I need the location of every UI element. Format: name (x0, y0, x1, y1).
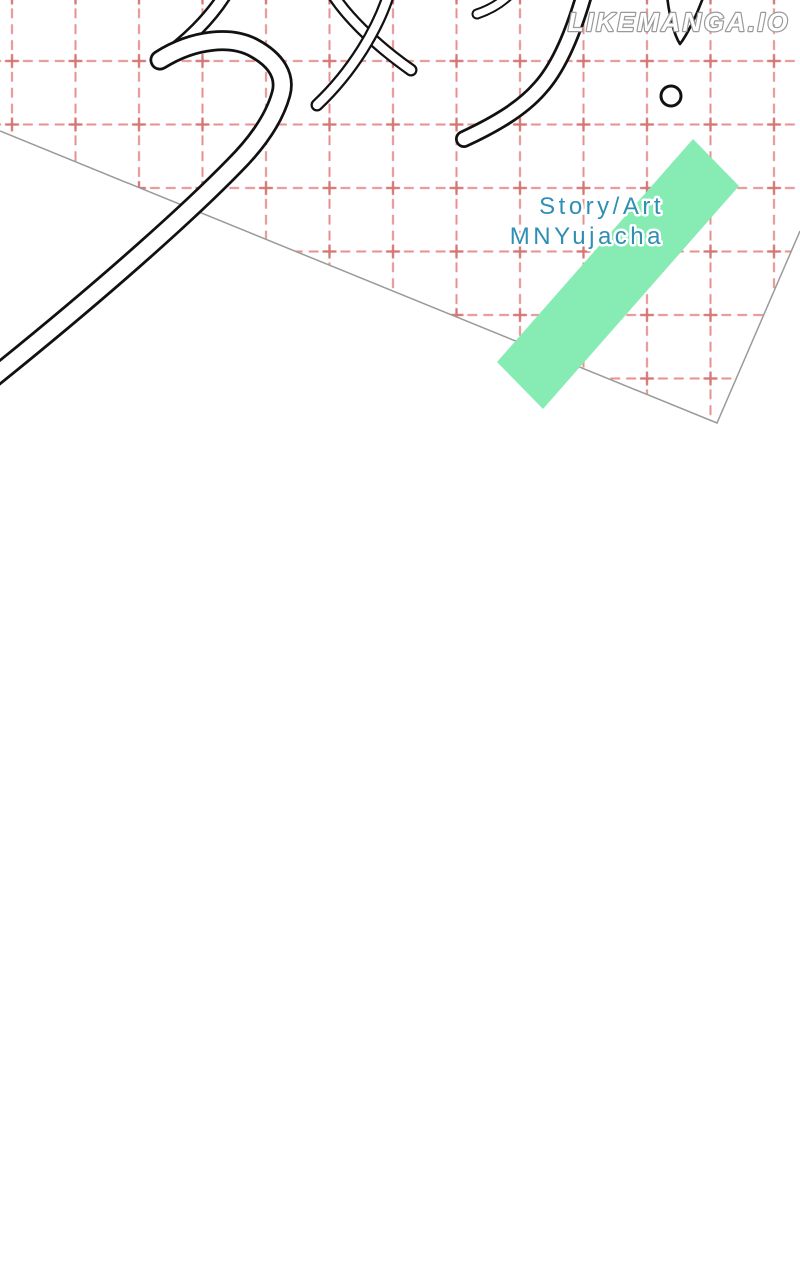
comic-page: Story/Art MNYujacha LIKEMANGA.IO (0, 0, 800, 1280)
exclamation-mark-dot (661, 86, 681, 106)
credits-author-text: MNYujacha (510, 223, 664, 250)
credits-role-text: Story/Art (539, 193, 664, 220)
cover-art: Story/Art MNYujacha LIKEMANGA.IO (0, 0, 800, 450)
blank-panel-area (0, 450, 800, 1280)
site-watermark: LIKEMANGA.IO (568, 7, 790, 37)
